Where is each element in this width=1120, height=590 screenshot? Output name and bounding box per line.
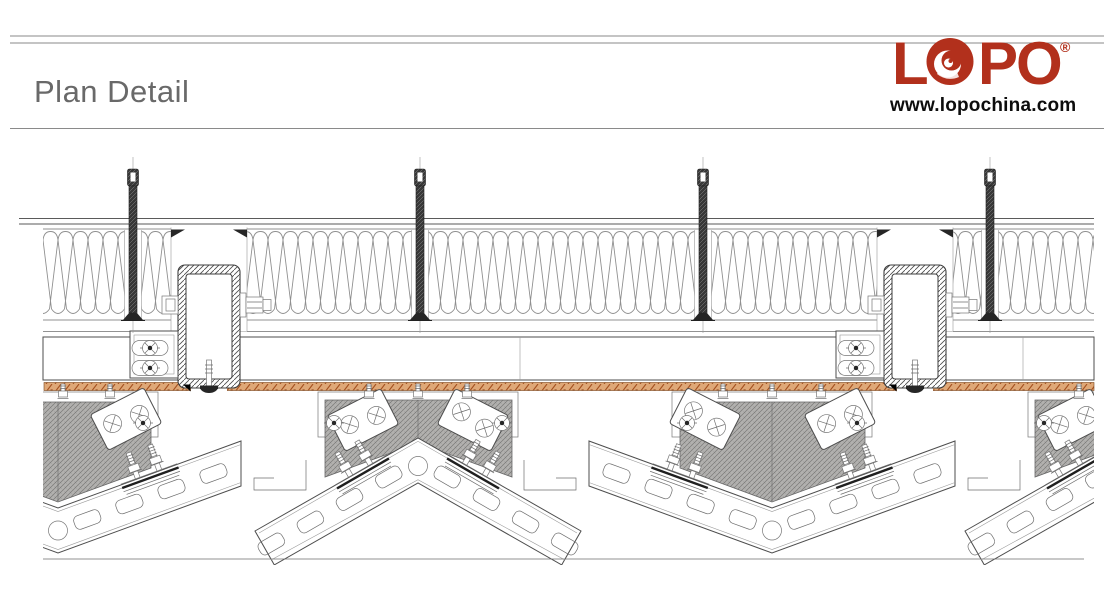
wave-swirl-icon: [927, 38, 974, 85]
website-url: www.lopochina.com: [890, 95, 1074, 117]
wall-line: [19, 219, 1094, 225]
registered-trademark: ®: [1060, 39, 1071, 55]
logo-letter-l: L: [892, 36, 927, 88]
logo-letter-p: P: [978, 36, 1016, 88]
lopo-wordmark: L P O ®: [890, 36, 1074, 88]
page-title: Plan Detail: [34, 74, 189, 110]
panel-module-peak: [965, 389, 1120, 565]
logo-letter-o: O: [1016, 36, 1061, 88]
page: Plan Detail L P O ® www.lopochina.com: [0, 0, 1120, 590]
panel-module-peak: [255, 389, 581, 565]
panel-module-valley: [524, 388, 1020, 553]
lopo-logo: L P O ® www.lopochina.com: [890, 36, 1074, 117]
